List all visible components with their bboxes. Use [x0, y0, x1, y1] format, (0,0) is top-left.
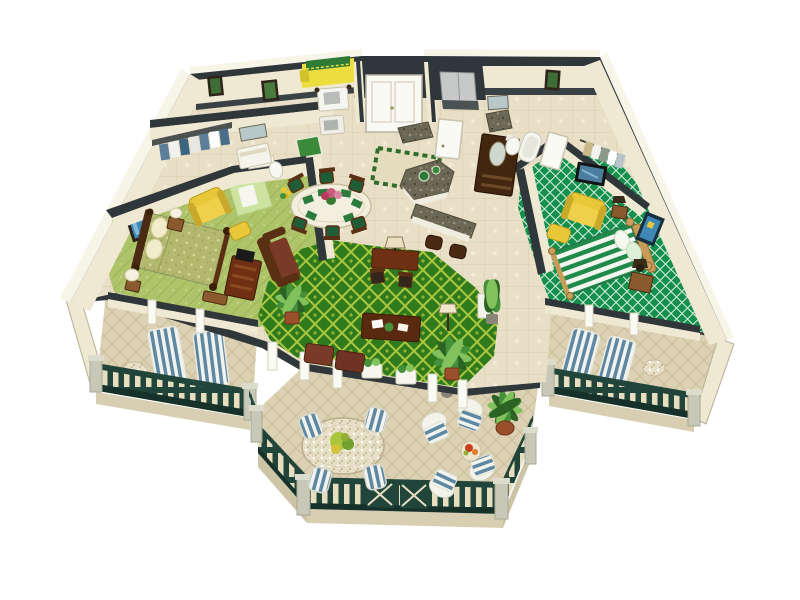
centerpiece — [331, 444, 341, 454]
centerpiece — [341, 433, 349, 441]
appliance-front — [324, 119, 339, 130]
side-table — [643, 360, 665, 376]
plant-pot — [285, 312, 299, 324]
elevator-threshold — [442, 100, 479, 110]
nightstand — [611, 205, 628, 219]
railing-post — [688, 392, 700, 426]
planter-foliage — [364, 359, 372, 367]
terrace-pillar — [268, 342, 277, 370]
terrace-pillar — [428, 374, 437, 402]
ottoman — [335, 350, 365, 373]
hall-rug — [296, 136, 322, 158]
post-cap — [493, 478, 510, 484]
bar-stool — [425, 234, 443, 250]
sconce — [315, 88, 320, 93]
table-lamp — [125, 269, 139, 281]
railing-post — [90, 358, 102, 392]
plant-pot — [486, 314, 498, 324]
framed-art-image — [547, 72, 558, 88]
dining-area — [287, 167, 371, 240]
railing-post — [297, 477, 310, 515]
flower-centerpiece — [321, 192, 329, 200]
post-cap — [249, 405, 264, 411]
planter-foliage — [406, 364, 414, 372]
bar-stool — [449, 243, 467, 259]
railing-post — [495, 481, 508, 519]
framed-art-image — [210, 78, 222, 94]
patio-chair — [363, 463, 388, 491]
plate — [432, 166, 440, 174]
lounge-chair — [193, 329, 230, 388]
post-cap — [523, 427, 538, 433]
vanity-panel — [323, 91, 340, 104]
main-terrace — [249, 370, 538, 528]
outer-wall-face — [424, 49, 600, 57]
dining-chair-seat — [326, 226, 339, 237]
post-cap — [88, 355, 104, 361]
door-pillar — [196, 309, 204, 333]
desk-lamp-shade — [385, 237, 405, 248]
floorplan-scene — [0, 0, 800, 600]
floorplan-3d-rendering — [0, 0, 800, 600]
plant-pot — [496, 421, 514, 435]
flowers — [464, 451, 469, 456]
ottoman — [304, 343, 334, 366]
post-cap — [242, 383, 258, 389]
dining-chair-back — [324, 236, 340, 240]
planter-box — [396, 370, 416, 384]
bed-post — [567, 293, 574, 300]
banana-leaf — [486, 279, 498, 309]
desk-chair-seat — [370, 271, 384, 284]
door-knob — [442, 145, 445, 148]
papers — [371, 319, 383, 328]
door-pillar — [148, 300, 156, 324]
flower-plant — [281, 187, 287, 193]
bed-post — [626, 218, 634, 226]
framed-art-image — [264, 82, 277, 99]
bed-post — [549, 248, 556, 255]
mirror — [488, 95, 509, 109]
door-pillar — [630, 313, 638, 335]
yellow-wall-return — [299, 70, 309, 83]
post-cap — [686, 389, 702, 395]
plate — [419, 171, 429, 181]
table-lamp — [170, 208, 182, 218]
flower-centerpiece — [334, 191, 342, 199]
door-pillar — [585, 305, 593, 327]
bed-post — [209, 283, 217, 291]
desk-chair-seat — [398, 275, 412, 287]
lamp-shade — [612, 196, 626, 203]
bath-door — [435, 119, 463, 159]
planter-box — [362, 364, 382, 378]
terrace-pillar — [458, 380, 467, 408]
railing-post — [525, 430, 536, 464]
table-plant — [385, 323, 394, 332]
floor-lamp-shade — [439, 304, 457, 313]
flowers — [472, 449, 478, 455]
lamp-base — [636, 264, 644, 272]
planter-foliage — [398, 365, 406, 373]
plant-leaves — [280, 193, 286, 199]
bed-post — [147, 209, 154, 216]
dining-chair-seat — [320, 171, 334, 183]
sconce — [347, 85, 352, 90]
planter-foliage — [372, 358, 380, 366]
door-knob — [390, 106, 394, 110]
vanity — [486, 110, 512, 132]
railing-post — [251, 408, 262, 442]
plant-pot — [445, 368, 459, 380]
